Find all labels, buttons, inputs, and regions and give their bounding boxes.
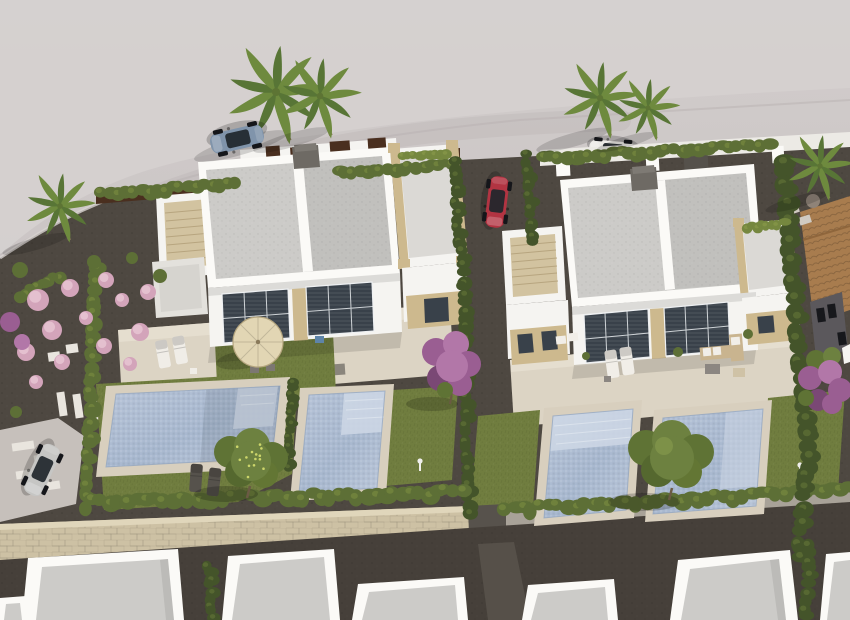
pink-shrub-highlight — [116, 294, 124, 302]
hedge-highlight — [773, 222, 778, 226]
fruit-dot — [253, 464, 256, 467]
hedge-blob — [799, 610, 814, 620]
hedge-highlight — [801, 413, 809, 420]
right-wing-window — [424, 297, 449, 323]
hedge-highlight — [804, 541, 810, 546]
pool-2 — [290, 384, 394, 501]
pink-shrub-highlight — [98, 339, 107, 348]
right-wing-window — [757, 315, 774, 333]
hedge-highlight — [522, 150, 527, 155]
coping-cap — [446, 140, 458, 150]
hedge-highlight — [600, 152, 606, 157]
fruit-dot — [259, 458, 262, 461]
hedge-highlight — [781, 490, 788, 496]
hedge-highlight — [803, 430, 811, 437]
hedge-highlight — [800, 482, 807, 488]
hedge-highlight — [452, 157, 457, 162]
hedge-highlight — [461, 421, 467, 426]
fruit-dot — [260, 447, 263, 450]
pink-shrub-highlight — [142, 285, 151, 294]
hedge-highlight — [374, 166, 380, 171]
hedge-highlight — [793, 312, 801, 319]
hedge-blob — [801, 578, 816, 588]
aerial-render: Aerial 3D render – new-build villas with… — [0, 0, 850, 620]
hedge-blob — [82, 437, 97, 448]
fruit-dot — [248, 465, 251, 468]
hedge-highlight — [553, 153, 559, 158]
hedge-blob — [456, 281, 467, 290]
hedge-highlight — [174, 182, 180, 187]
hedge-blob — [82, 453, 98, 464]
hedge-highlight — [87, 338, 93, 343]
pink-shrub-highlight — [100, 273, 109, 282]
stone-pier — [292, 288, 308, 341]
fruit-dot — [239, 459, 242, 462]
hedge-highlight — [462, 308, 468, 313]
hedge-highlight — [82, 481, 88, 486]
hedge-highlight — [92, 277, 98, 282]
straw-parasol — [233, 317, 283, 367]
hedge-blob — [524, 209, 535, 218]
hedge-blob — [790, 340, 808, 354]
hedge-highlight — [791, 333, 799, 340]
hedge-highlight — [456, 209, 461, 214]
hedge-highlight — [534, 500, 541, 506]
fruit-dot — [255, 453, 258, 456]
pink-shrub-highlight — [80, 312, 88, 320]
hedge-blob — [527, 236, 539, 246]
hedge-highlight — [89, 353, 95, 358]
fruit-dot — [236, 445, 239, 448]
hedge-blob — [84, 407, 102, 418]
hedge-highlight — [779, 157, 787, 164]
pink-shrub-highlight — [56, 355, 65, 364]
hedge-highlight — [334, 490, 341, 496]
hedge-highlight — [453, 223, 458, 228]
hedge-highlight — [128, 188, 134, 193]
hedge-blob — [778, 218, 791, 226]
pink-shrub-highlight — [63, 280, 73, 290]
hedge-blob — [204, 579, 214, 588]
fruit-dot — [247, 476, 250, 479]
hedge-highlight — [459, 260, 465, 265]
hedge-highlight — [347, 169, 353, 174]
green-shrub — [12, 262, 28, 278]
hedge-highlight — [85, 387, 91, 392]
hedge-highlight — [287, 409, 292, 413]
hedge-highlight — [443, 151, 448, 155]
hedge-highlight — [464, 465, 470, 470]
hedge-highlight — [461, 291, 467, 296]
hedge-blob — [228, 177, 241, 189]
green-shrub — [10, 406, 22, 418]
hedge-highlight — [499, 504, 506, 510]
hedge-highlight — [661, 145, 667, 150]
hedge-highlight — [286, 443, 291, 447]
fruit-dot — [259, 454, 262, 457]
fruit-dot — [259, 443, 262, 446]
hedge-highlight — [452, 171, 457, 176]
hedge-highlight — [209, 589, 214, 594]
hedge-highlight — [96, 188, 102, 193]
hedge-highlight — [524, 191, 529, 196]
hedge-highlight — [786, 255, 794, 262]
render-stage: Aerial 3D render – new-build villas with… — [0, 0, 850, 620]
hedge-highlight — [709, 490, 716, 496]
hedge-blob — [460, 426, 471, 436]
hedge-highlight — [157, 496, 164, 502]
hedge-blob — [14, 291, 27, 303]
hedge-highlight — [210, 614, 215, 619]
hedge-highlight — [82, 465, 88, 470]
coping-cap — [733, 218, 744, 227]
hedge-blob — [792, 525, 807, 536]
hedge-highlight — [755, 142, 761, 147]
hedge-highlight — [762, 223, 767, 227]
green-shrub — [153, 269, 167, 283]
stone-pier — [650, 308, 666, 359]
green-shrub — [126, 252, 138, 264]
window-right-unit — [306, 282, 374, 336]
hedge-highlight — [583, 152, 589, 157]
hedge-highlight — [459, 486, 466, 492]
hedge-highlight — [790, 292, 798, 299]
blue-planter — [315, 336, 324, 343]
coping-cap — [388, 143, 400, 153]
hedge-highlight — [551, 500, 558, 506]
hedge-blob — [458, 296, 472, 306]
hedge-highlight — [203, 562, 208, 567]
hedge-blob — [761, 138, 778, 150]
hedge-highlight — [290, 379, 295, 383]
hedge-highlight — [386, 488, 393, 494]
green-shrub — [87, 255, 101, 269]
hedge-highlight — [87, 326, 93, 331]
pink-shrub-highlight — [29, 291, 41, 303]
hedge-highlight — [647, 149, 653, 154]
hedge-highlight — [403, 162, 409, 167]
hedge-highlight — [123, 497, 130, 503]
hedge-highlight — [351, 493, 358, 499]
left-wing-window — [541, 330, 558, 350]
hedge-highlight — [804, 590, 810, 595]
hedge-blob — [795, 490, 811, 501]
hedge-highlight — [524, 167, 529, 172]
hedge-highlight — [708, 142, 714, 147]
hedge-highlight — [785, 235, 793, 242]
hedge-highlight — [806, 571, 812, 576]
hedge-highlight — [799, 518, 806, 524]
hedge-blob — [457, 267, 471, 277]
hedge-highlight — [466, 509, 472, 514]
pink-shrub-highlight — [133, 324, 143, 334]
pink-shrub-highlight — [30, 376, 38, 384]
hedge-blob — [776, 182, 798, 196]
hedge-highlight — [409, 152, 414, 156]
hedge-highlight — [289, 420, 294, 424]
fruit-dot — [245, 456, 248, 459]
hedge-highlight — [439, 484, 446, 490]
hedge-highlight — [800, 606, 806, 611]
window-left-unit — [584, 309, 650, 363]
left-wing-window — [517, 333, 534, 353]
fruit-dot — [251, 451, 254, 454]
pink-shrub-highlight — [44, 322, 55, 333]
fruit-dot — [254, 458, 257, 461]
pink-shrub-highlight — [124, 358, 132, 366]
hedge-highlight — [526, 204, 531, 209]
hedge-highlight — [297, 494, 304, 500]
hedge-highlight — [458, 246, 464, 251]
fruit-dot — [262, 467, 265, 470]
hedge-highlight — [805, 451, 813, 458]
